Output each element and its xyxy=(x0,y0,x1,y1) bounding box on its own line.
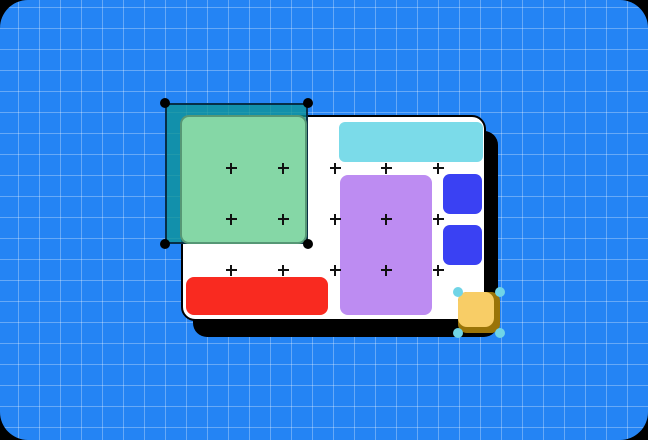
scale-handle[interactable] xyxy=(495,287,505,297)
selection-handle[interactable] xyxy=(303,239,313,249)
shape-yellow-square-highlight xyxy=(458,292,494,327)
selection-handle[interactable] xyxy=(160,239,170,249)
selection-handle[interactable] xyxy=(160,98,170,108)
scale-handle[interactable] xyxy=(495,328,505,338)
scale-handle[interactable] xyxy=(453,287,463,297)
scale-handle[interactable] xyxy=(453,328,463,338)
selection-handles-layer xyxy=(0,0,648,440)
blueprint-grid-background xyxy=(0,0,648,440)
selection-handle[interactable] xyxy=(303,98,313,108)
